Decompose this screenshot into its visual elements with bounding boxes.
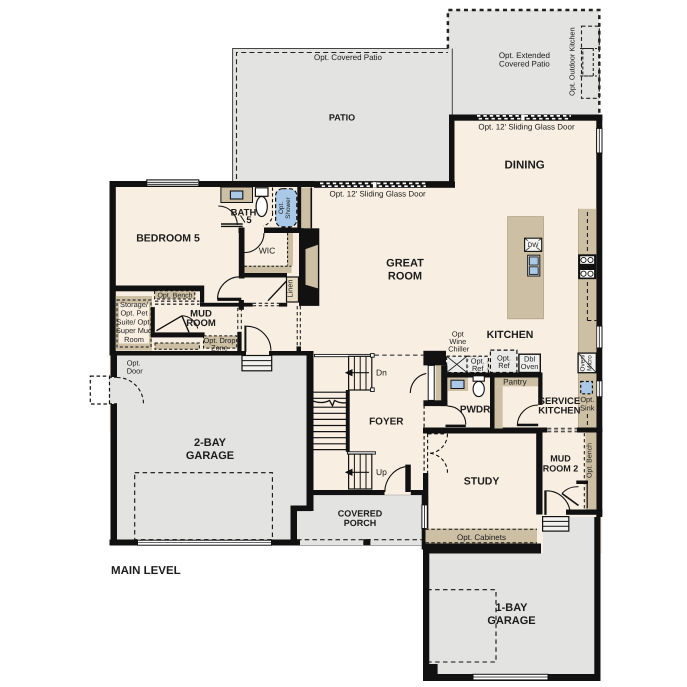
svg-text:PWDR: PWDR (460, 404, 491, 415)
svg-text:DINING: DINING (504, 159, 544, 171)
svg-text:Shower: Shower (285, 196, 292, 219)
svg-text:Chiller: Chiller (448, 345, 469, 354)
svg-text:Sink: Sink (580, 403, 595, 412)
svg-text:Opt. Covered Patio: Opt. Covered Patio (314, 53, 383, 62)
svg-text:STUDY: STUDY (464, 476, 500, 488)
svg-text:Opt. 12' Sliding Glass Door: Opt. 12' Sliding Glass Door (329, 190, 426, 199)
svg-text:WIC: WIC (259, 246, 276, 256)
svg-text:MAIN LEVEL: MAIN LEVEL (111, 565, 181, 577)
svg-text:Suite/ Opt.: Suite/ Opt. (117, 317, 152, 326)
svg-text:Oven: Oven (521, 362, 539, 371)
svg-text:Up: Up (376, 467, 387, 477)
svg-text:Opt.: Opt. (278, 202, 285, 214)
svg-text:PATIO: PATIO (329, 112, 355, 122)
svg-text:Opt. Bench: Opt. Bench (585, 443, 593, 478)
svg-text:Dn: Dn (376, 368, 387, 378)
svg-text:ROOM: ROOM (186, 318, 216, 329)
svg-text:Micro: Micro (587, 355, 594, 371)
svg-text:Opt. Cabinets: Opt. Cabinets (457, 533, 506, 542)
svg-text:2-BAY: 2-BAY (194, 437, 227, 449)
svg-text:BEDROOM 5: BEDROOM 5 (136, 232, 200, 244)
svg-text:ROOM: ROOM (388, 270, 422, 282)
svg-text:Pantry: Pantry (503, 377, 528, 386)
svg-text:Door: Door (127, 367, 144, 376)
svg-text:Ref: Ref (472, 364, 484, 373)
svg-text:KITCHEN: KITCHEN (538, 405, 580, 416)
svg-text:ROOM 2: ROOM 2 (543, 463, 579, 473)
svg-text:Opt. Bench: Opt. Bench (157, 291, 192, 299)
svg-text:Opt. Outdoor Kitchen: Opt. Outdoor Kitchen (568, 27, 577, 96)
svg-text:BATH: BATH (231, 208, 257, 219)
svg-text:Linen: Linen (286, 279, 295, 297)
svg-text:MUD: MUD (550, 454, 571, 464)
svg-text:GARAGE: GARAGE (487, 615, 535, 627)
svg-text:Zone: Zone (211, 343, 228, 352)
svg-text:GREAT: GREAT (386, 258, 424, 270)
svg-text:GARAGE: GARAGE (186, 450, 234, 462)
svg-text:DW: DW (528, 242, 540, 249)
svg-text:Opt. 12' Sliding Glass Door: Opt. 12' Sliding Glass Door (478, 123, 575, 132)
svg-text:Covered Patio: Covered Patio (499, 59, 550, 68)
svg-text:KITCHEN: KITCHEN (487, 329, 534, 341)
svg-text:Opt. Pet: Opt. Pet (120, 309, 147, 318)
svg-text:FOYER: FOYER (369, 417, 404, 428)
svg-text:5: 5 (246, 215, 252, 226)
svg-text:Oven/: Oven/ (580, 354, 587, 371)
svg-text:Ref: Ref (498, 361, 510, 370)
svg-text:Room: Room (124, 335, 144, 344)
svg-text:Super Mud: Super Mud (116, 326, 152, 335)
svg-text:1-BAY: 1-BAY (496, 602, 529, 614)
svg-text:Storage/: Storage/ (120, 300, 149, 309)
svg-text:PORCH: PORCH (344, 518, 377, 528)
